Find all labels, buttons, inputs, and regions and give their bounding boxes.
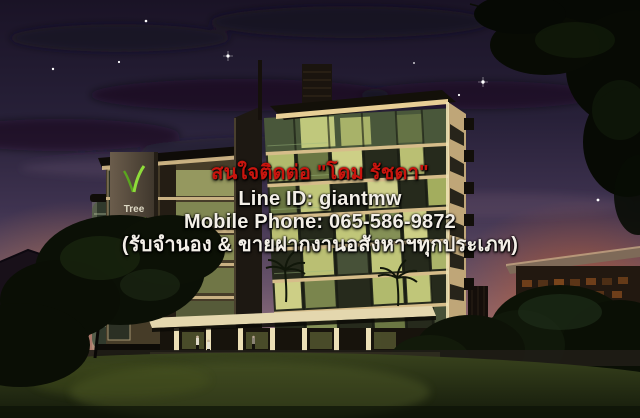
- property-ad-photo: Tree: [0, 0, 640, 418]
- contact-name-text: สนใจติดต่อ "โดม รัชดา": [0, 161, 640, 185]
- services-text: (รับจำนอง & ขายฝากงานอสังหาฯทุกประเภท): [0, 233, 640, 257]
- mobile-phone-text: Mobile Phone: 065-586-9872: [0, 210, 640, 234]
- line-id-text: Line ID: giantmw: [0, 187, 640, 211]
